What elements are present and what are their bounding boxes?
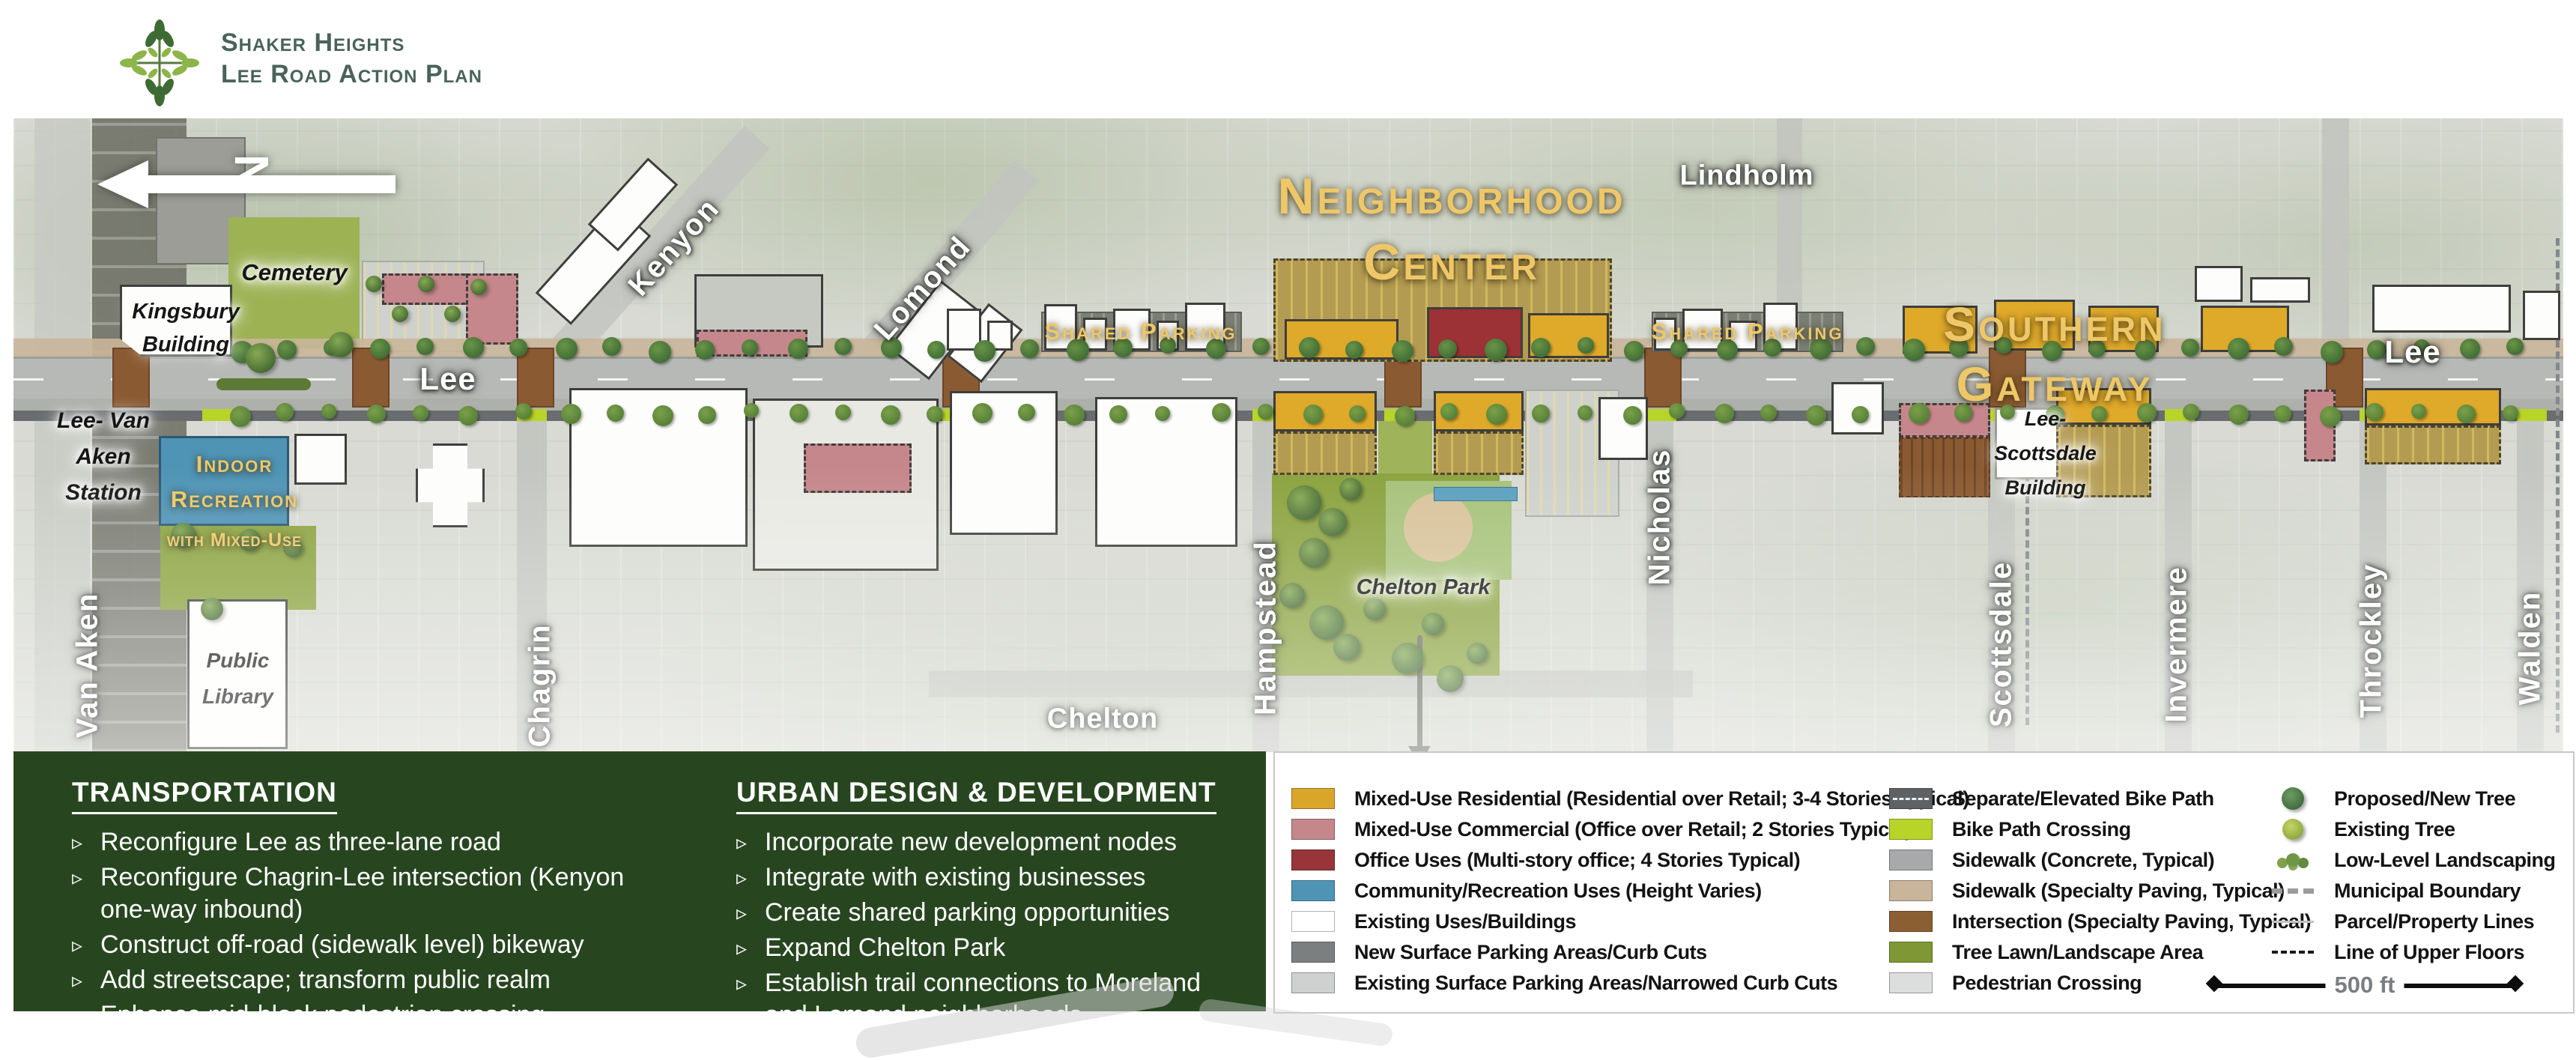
legend-swatch [1291,788,1335,809]
legend-row: Municipal Boundary [2271,879,2521,902]
legend-swatch [1889,911,1933,932]
legend-label: Bike Path Crossing [1952,818,2131,841]
bullet-icon: ▹ [72,964,100,996]
strategy-panel: TRANSPORTATION ▹Reconfigure Lee as three… [13,751,1266,1011]
legend-row: Mixed-Use Commercial (Office over Retail… [1291,818,1912,841]
list-item: ▹Incorporate new development nodes [736,826,1231,858]
legend-label: Mixed-Use Residential (Residential over … [1354,787,1969,811]
list-item: ▹Enhance mid-block pedestrian crossing [72,999,641,1032]
list-item: ▹Create shared parking opportunities [736,897,1231,929]
list-item: ▹Construct off-road (sidewalk level) bik… [72,929,641,961]
legend-row: Bike Path Crossing [1889,818,2131,841]
legend-row: Separate/Elevated Bike Path [1889,787,2214,810]
transportation-list: ▹Reconfigure Lee as three-lane road ▹Rec… [72,826,641,1032]
legend-label: Sidewalk (Specialty Paving, Typical) [1952,879,2285,903]
urban-design-section: URBAN DESIGN & DEVELOPMENT ▹Incorporate … [736,777,1253,1035]
legend-swatch [1291,819,1335,840]
legend-swatch [1291,942,1335,963]
legend-row: Pedestrian Crossing [1889,972,2142,994]
legend-label: New Surface Parking Areas/Curb Cuts [1354,941,1707,964]
legend-row: Proposed/New Tree [2271,787,2515,810]
legend-label: Line of Upper Floors [2334,941,2524,964]
legend-row: Sidewalk (Concrete, Typical) [1889,849,2214,871]
landscaping-icon [2271,849,2315,871]
site-plan-map: N Neighborhood Center Southern Gateway S… [13,118,2563,752]
list-item: ▹Integrate with existing businesses [736,861,1231,894]
urban-design-title: URBAN DESIGN & DEVELOPMENT [736,777,1216,814]
plan-logo-title: Shaker Heights Lee Road Action Plan [221,27,482,90]
legend-row: Mixed-Use Residential (Residential over … [1291,787,1969,810]
legend-swatch [1291,849,1335,870]
legend-swatch [1889,849,1933,870]
legend-row: Low-Level Landscaping [2271,849,2556,871]
legend-row: Parcel/Property Lines [2271,910,2534,933]
legend-label: Proposed/New Tree [2334,787,2515,811]
bullet-icon: ▹ [72,929,100,961]
page-header: Shaker Heights Lee Road Action Plan [0,0,2576,118]
legend-swatch [1889,880,1933,901]
legend-row: Tree Lawn/Landscape Area [1889,941,2203,963]
map-fade-overlay [13,118,2563,752]
legend-label: Mixed-Use Commercial (Office over Retail… [1354,818,1912,841]
legend-swatch [1291,880,1335,901]
bullet-icon: ▹ [736,932,765,964]
municipal-boundary-icon [2271,879,2315,902]
legend-label: Office Uses (Multi-story office; 4 Stori… [1354,849,1800,872]
bullet-icon: ▹ [736,967,765,1032]
bullet-icon: ▹ [72,861,100,926]
list-item: ▹Reconfigure Chagrin-Lee intersection (K… [72,861,641,926]
legend-row: Sidewalk (Specialty Paving, Typical) [1889,879,2285,902]
transportation-section: TRANSPORTATION ▹Reconfigure Lee as three… [72,777,671,1035]
legend-row: New Surface Parking Areas/Curb Cuts [1291,941,1707,963]
parcel-lines-icon [2271,910,2315,933]
legend-swatch [1889,819,1933,840]
legend-label: Parcel/Property Lines [2334,910,2534,933]
bullet-icon: ▹ [736,861,765,894]
legend-panel: Mixed-Use Residential (Residential over … [1273,751,2575,1014]
scale-label: 500 ft [2326,972,2404,999]
legend-row: Community/Recreation Uses (Height Varies… [1291,879,1762,902]
legend-row: Intersection (Specialty Paving, Typical) [1889,910,2311,933]
existing-tree-icon [2271,818,2315,841]
proposed-tree-icon [2271,787,2315,810]
list-item: ▹Add streetscape; transform public realm [72,964,641,996]
legend-row: Existing Surface Parking Areas/Narrowed … [1291,972,1837,994]
legend-label: Existing Tree [2334,818,2455,841]
legend-row: Office Uses (Multi-story office; 4 Stori… [1291,849,1800,871]
bullet-icon: ▹ [736,826,765,858]
bullet-icon: ▹ [72,826,100,858]
transportation-title: TRANSPORTATION [72,777,337,814]
legend-label: Sidewalk (Concrete, Typical) [1952,849,2214,872]
legend-label: Municipal Boundary [2334,879,2521,903]
legend-swatch [1889,788,1933,809]
legend-label: Low-Level Landscaping [2334,849,2556,872]
legend-swatch [1889,942,1933,963]
list-item: ▹Expand Chelton Park [736,932,1231,964]
shaker-heights-leaf-logo-icon [118,19,201,106]
legend-label: Existing Uses/Buildings [1354,910,1576,933]
legend-label: Community/Recreation Uses (Height Varies… [1354,879,1762,903]
legend-label: Pedestrian Crossing [1952,972,2142,995]
scale-bar: 500 ft [2213,984,2517,988]
upper-floors-icon [2271,941,2315,963]
legend-label: Existing Surface Parking Areas/Narrowed … [1354,972,1837,995]
legend-row: Line of Upper Floors [2271,941,2524,963]
legend-label: Tree Lawn/Landscape Area [1952,941,2203,964]
legend-row: Existing Uses/Buildings [1291,910,1576,933]
legend-swatch [1291,972,1335,993]
legend-label: Intersection (Specialty Paving, Typical) [1952,910,2311,933]
legend-row: Existing Tree [2271,818,2455,841]
bullet-icon: ▹ [72,999,100,1032]
legend-swatch [1291,911,1335,932]
legend-swatch [1889,972,1933,993]
logo-org-name: Shaker Heights [221,27,482,58]
bullet-icon: ▹ [736,897,765,929]
list-item: ▹Reconfigure Lee as three-lane road [72,826,641,858]
legend-label: Separate/Elevated Bike Path [1952,787,2214,811]
logo-plan-name: Lee Road Action Plan [221,58,482,90]
